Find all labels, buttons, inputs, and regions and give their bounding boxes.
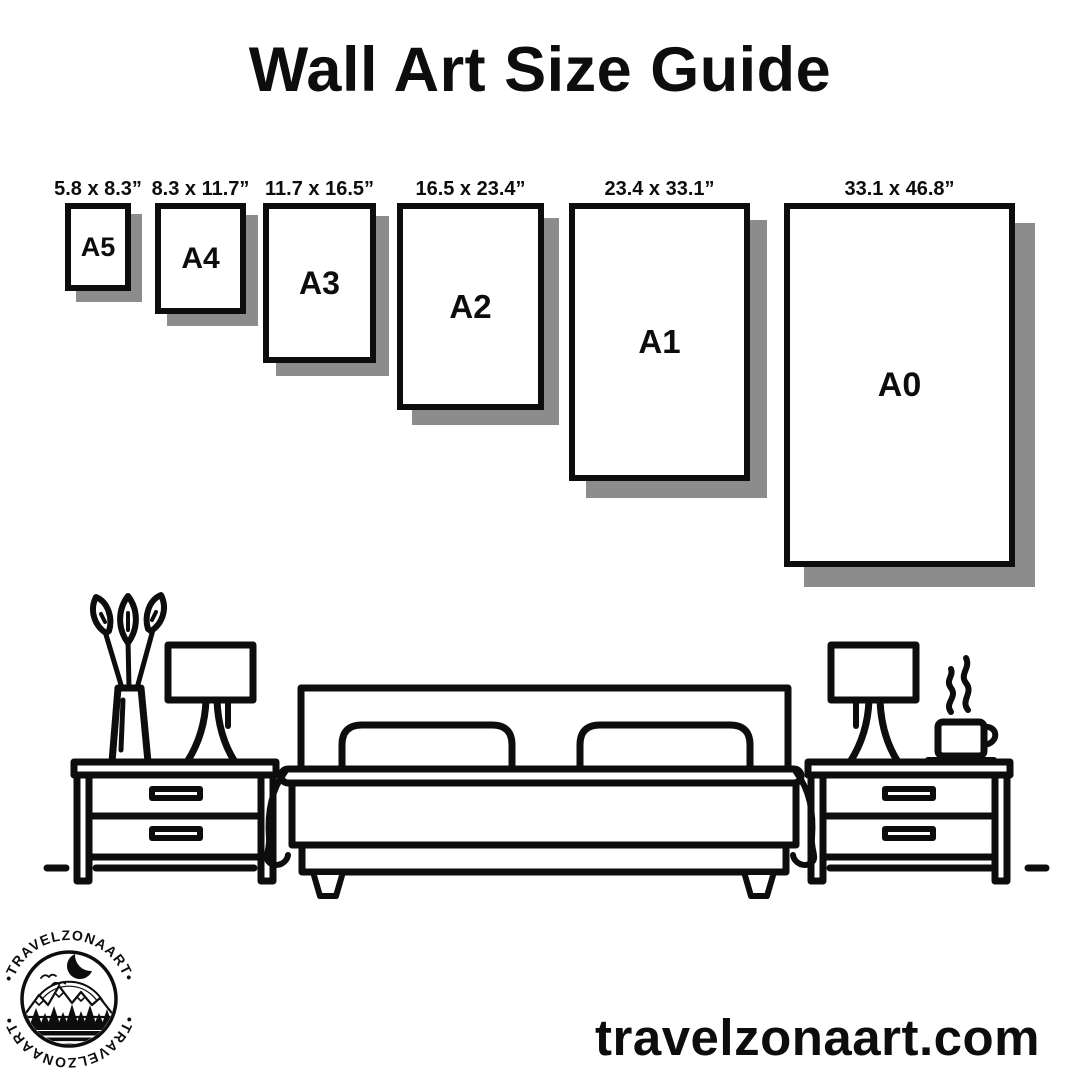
- frame-size-label-a3: A3: [299, 265, 340, 302]
- frame-size-label-a1: A1: [638, 323, 680, 361]
- size-frame-a2: 16.5 x 23.4” A2: [397, 203, 544, 410]
- frame-size-label-a5: A5: [81, 232, 116, 263]
- bed-leg-left: [313, 872, 343, 896]
- frame-dimensions-a5: 5.8 x 8.3”: [54, 178, 142, 201]
- frame-size-label-a0: A0: [878, 366, 921, 405]
- bed-leg-right: [744, 872, 774, 896]
- frame-dimensions-a3: 11.7 x 16.5”: [265, 178, 374, 201]
- size-frame-a0: 33.1 x 46.8” A0: [784, 203, 1015, 567]
- bed-icon: [267, 688, 814, 896]
- page-title: Wall Art Size Guide: [0, 34, 1080, 106]
- table-lamp-right-icon: [831, 645, 916, 762]
- nightstand-left-icon: [74, 762, 276, 881]
- size-frame-a1: 23.4 x 33.1” A1: [569, 203, 750, 481]
- plant-vase-icon: [93, 595, 164, 762]
- frame-size-label-a2: A2: [449, 288, 491, 326]
- brand-logo: •TRAVELZONAART• •TRAVELZONAART•: [0, 924, 144, 1074]
- coffee-cup-icon: [928, 658, 995, 760]
- frame-dimensions-a4: 8.3 x 11.7”: [152, 178, 250, 201]
- frame-size-label-a4: A4: [181, 242, 219, 276]
- size-guide-poster: Wall Art Size Guide 5.8 x 8.3” A5 8.3 x …: [0, 0, 1080, 1080]
- table-lamp-left-icon: [168, 645, 253, 762]
- frame-dimensions-a0: 33.1 x 46.8”: [844, 178, 954, 201]
- size-frame-a4: 8.3 x 11.7” A4: [155, 203, 246, 314]
- website-url: travelzonaart.com: [595, 1008, 1040, 1067]
- frame-dimensions-a2: 16.5 x 23.4”: [415, 178, 525, 201]
- bedroom-illustration: [0, 578, 1080, 908]
- steam-icon: [949, 658, 969, 712]
- size-frame-a3: 11.7 x 16.5” A3: [263, 203, 376, 363]
- nightstand-right-icon: [808, 762, 1010, 881]
- frame-dimensions-a1: 23.4 x 33.1”: [604, 178, 714, 201]
- size-frame-a5: 5.8 x 8.3” A5: [65, 203, 131, 291]
